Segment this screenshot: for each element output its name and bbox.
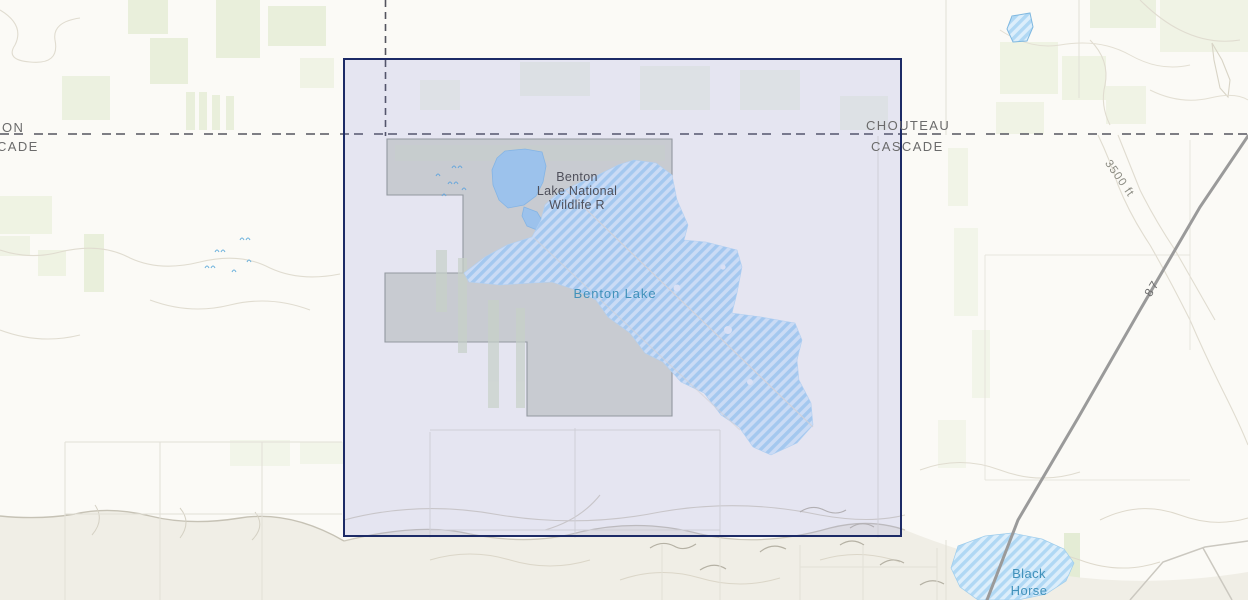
map-canvas[interactable]: ON CADE CHOUTEAU CASCADE Benton Lake Nat… (0, 0, 1248, 600)
selection-box[interactable] (343, 58, 902, 537)
